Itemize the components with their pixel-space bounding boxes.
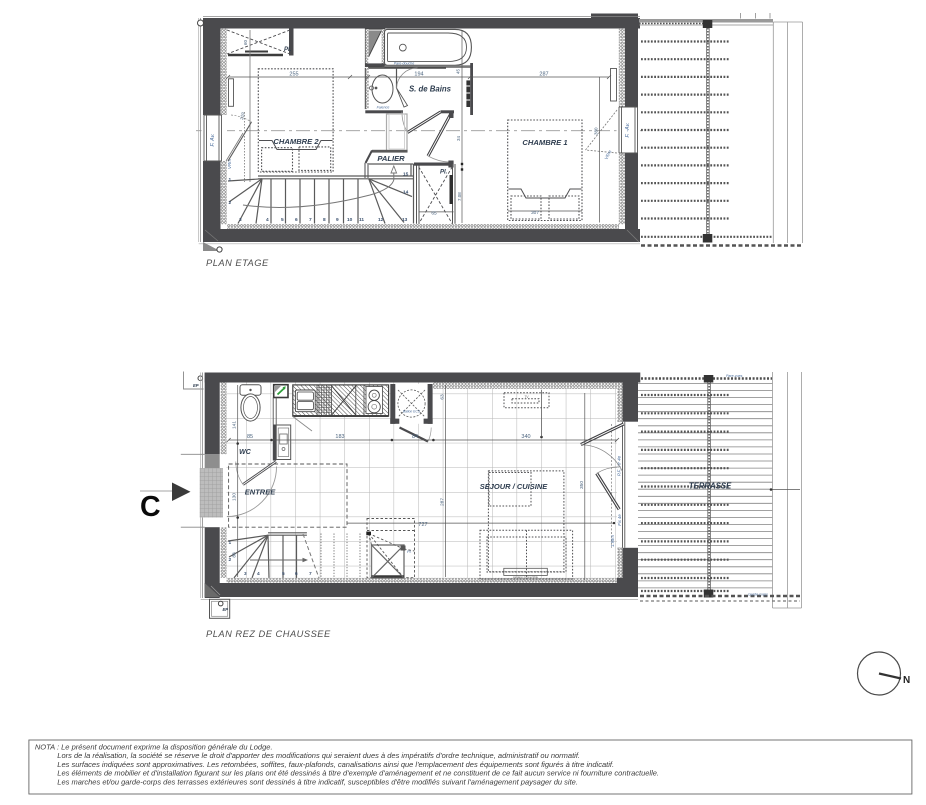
svg-text:85: 85 xyxy=(247,434,253,440)
svg-text:2: 2 xyxy=(229,557,232,563)
svg-text:9: 9 xyxy=(336,217,339,223)
svg-text:CHAMBRE 2: CHAMBRE 2 xyxy=(273,137,319,146)
svg-text:11: 11 xyxy=(359,217,364,223)
svg-text:88: 88 xyxy=(232,552,238,558)
svg-text:2: 2 xyxy=(229,200,232,206)
svg-text:6: 6 xyxy=(295,217,298,223)
svg-text:340: 340 xyxy=(521,434,530,440)
svg-text:EP: EP xyxy=(193,383,199,388)
svg-text:34: 34 xyxy=(456,135,461,141)
svg-text:PLAN REZ DE CHAUSSEE: PLAN REZ DE CHAUSSEE xyxy=(206,629,331,639)
svg-text:287: 287 xyxy=(539,72,548,78)
svg-text:8: 8 xyxy=(323,217,326,223)
svg-text:F. Av.: F. Av. xyxy=(210,133,216,146)
svg-text:255: 255 xyxy=(289,72,298,78)
svg-text:14: 14 xyxy=(403,190,409,196)
svg-text:N: N xyxy=(903,675,910,686)
svg-text:45: 45 xyxy=(456,68,461,74)
svg-text:Les marches et/ou garde-corps: Les marches et/ou garde-corps des terras… xyxy=(57,777,578,786)
svg-text:3: 3 xyxy=(244,571,247,577)
svg-text:TERRASSE: TERRASSE xyxy=(689,482,732,491)
svg-text:ENTREE: ENTREE xyxy=(245,488,276,497)
svg-text:Ballon ECS: Ballon ECS xyxy=(403,410,421,414)
svg-text:Pl.: Pl. xyxy=(440,170,448,176)
svg-text:F. -Av.: F. -Av. xyxy=(625,122,631,137)
svg-text:350: 350 xyxy=(579,481,585,489)
svg-text:4: 4 xyxy=(266,217,269,223)
svg-text:C: C xyxy=(140,491,161,523)
svg-text:S. de Bains: S. de Bains xyxy=(409,85,452,94)
svg-text:Pl.: Pl. xyxy=(284,47,292,53)
svg-text:Fix 4e: Fix 4e xyxy=(617,514,622,526)
svg-text:194: 194 xyxy=(414,72,423,78)
svg-text:60: 60 xyxy=(243,39,248,45)
svg-text:VRm: VRm xyxy=(227,159,232,169)
svg-text:7: 7 xyxy=(309,217,312,223)
svg-text:CHAMBRE 1: CHAMBRE 1 xyxy=(522,138,567,147)
svg-text:12: 12 xyxy=(378,217,384,223)
svg-text:PLAN ETAGE: PLAN ETAGE xyxy=(206,258,269,268)
svg-text:5: 5 xyxy=(282,571,285,577)
svg-text:141: 141 xyxy=(232,421,238,429)
svg-text:84: 84 xyxy=(412,434,418,440)
svg-text:4: 4 xyxy=(257,571,260,577)
svg-text:NOTA : Le présent document exp: NOTA : Le présent document exprime la di… xyxy=(35,743,273,752)
svg-text:3: 3 xyxy=(239,217,242,223)
svg-text:1: 1 xyxy=(229,540,232,546)
svg-text:727: 727 xyxy=(418,522,427,528)
svg-text:63: 63 xyxy=(440,394,446,400)
svg-text:Les surfaces indiquées sont ap: Les surfaces indiquées sont approximativ… xyxy=(57,760,614,769)
svg-text:Garde-corps: Garde-corps xyxy=(748,593,768,597)
svg-text:7.08: 7.08 xyxy=(457,192,462,201)
svg-text:Lors de la réalisation, la soc: Lors de la réalisation, la société se ré… xyxy=(57,751,580,760)
svg-text:Les éléments de mobilier et d': Les éléments de mobilier et d'installati… xyxy=(57,769,659,778)
svg-text:6: 6 xyxy=(295,571,298,577)
svg-text:Pare-douche: Pare-douche xyxy=(394,62,415,66)
svg-text:SEJOUR / CUISINE: SEJOUR / CUISINE xyxy=(480,482,549,491)
svg-text:287: 287 xyxy=(440,498,446,506)
svg-text:PALIER: PALIER xyxy=(377,154,405,163)
svg-text:1: 1 xyxy=(229,177,232,183)
svg-text:EP: EP xyxy=(223,607,229,612)
svg-text:Pl.: Pl. xyxy=(407,549,412,554)
svg-text:183: 183 xyxy=(335,434,344,440)
svg-text:1.98m: 1.98m xyxy=(610,535,615,547)
svg-text:Faience: Faience xyxy=(377,105,390,109)
svg-text:7: 7 xyxy=(309,571,312,577)
svg-text:5: 5 xyxy=(281,217,284,223)
svg-text:65: 65 xyxy=(431,211,437,217)
svg-text:15: 15 xyxy=(403,172,409,178)
svg-text:WC: WC xyxy=(239,449,252,456)
svg-text:10: 10 xyxy=(347,217,353,223)
svg-text:Pare-vues: Pare-vues xyxy=(726,374,743,378)
svg-text:307: 307 xyxy=(531,210,539,216)
svg-text:canapé convertible: canapé convertible xyxy=(513,575,539,579)
svg-text:380: 380 xyxy=(594,127,599,135)
svg-text:13: 13 xyxy=(402,217,408,223)
svg-text:130: 130 xyxy=(232,493,238,501)
